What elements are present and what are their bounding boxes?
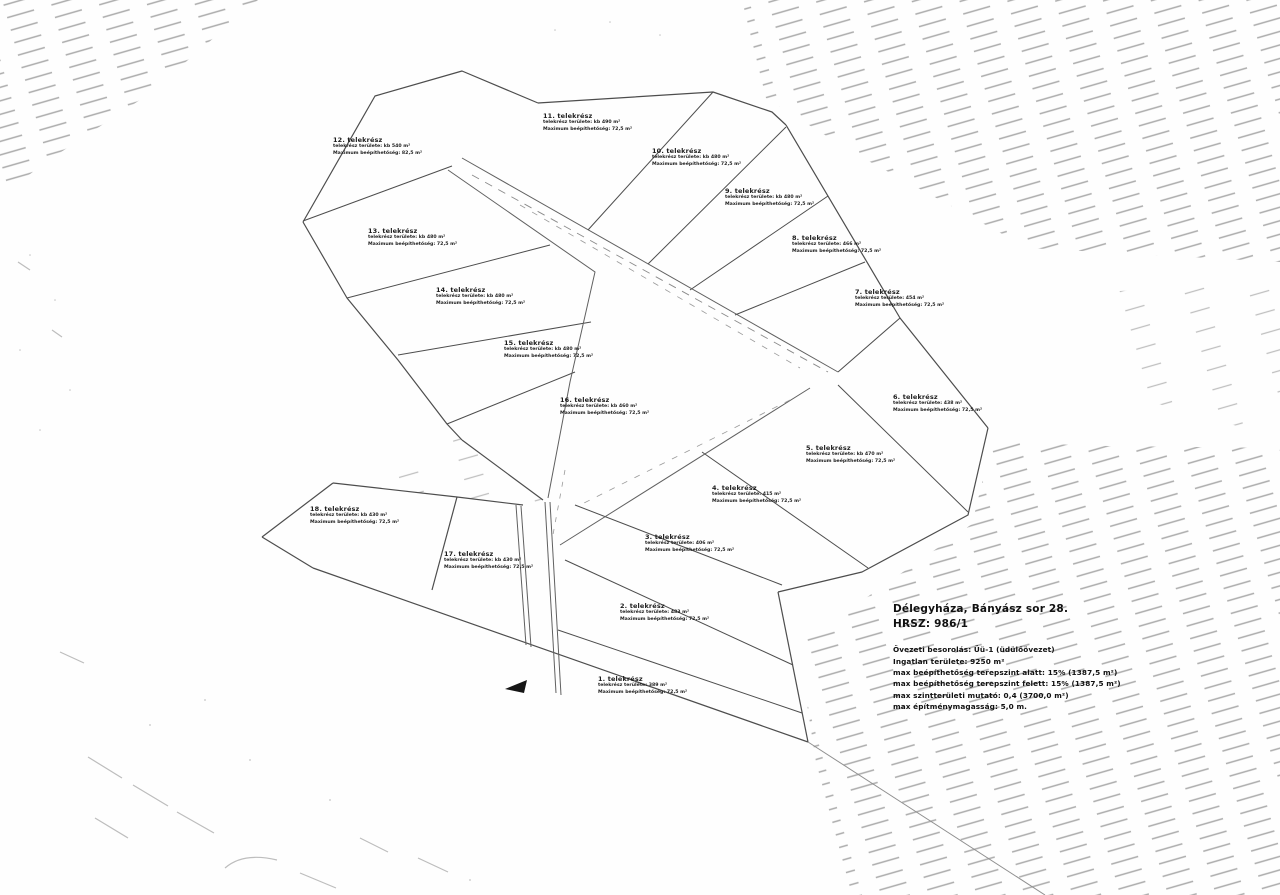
- plot-label-2: 2. telekrész telekrész területe: 483 m² …: [620, 602, 709, 623]
- plot-coverage: Maximum beépíthetőség: 72,5 m²: [652, 162, 741, 168]
- max-coverage-above-grade: max beépíthetőség terepszint felett: 15%…: [893, 678, 1121, 689]
- plot-label-18: 18. telekrész telekrész területe: kb 430…: [310, 505, 399, 526]
- plot-label-9: 9. telekrész telekrész területe: kb 480 …: [725, 187, 814, 208]
- plot-coverage: Maximum beépíthetőség: 72,5 m²: [712, 499, 801, 505]
- property-parcel-number: HRSZ: 986/1: [893, 617, 1121, 632]
- property-address: Délegyháza, Bányász sor 28.: [893, 602, 1121, 617]
- plot-label-14: 14. telekrész telekrész területe: kb 480…: [436, 286, 525, 307]
- plot-coverage: Maximum beépíthetőség: 72,5 m²: [598, 690, 687, 696]
- hatch-top-right: [742, 0, 1280, 262]
- neighbor-line-fragments: [18, 262, 448, 888]
- plot-area: telekrész területe: kb 490 m²: [543, 120, 632, 126]
- plot-area: telekrész területe: kb 480 m²: [725, 195, 814, 201]
- plot-coverage: Maximum beépíthetőség: 72,5 m²: [444, 565, 533, 571]
- plot-coverage: Maximum beépíthetőség: 72,5 m²: [543, 127, 632, 133]
- plot-coverage: Maximum beépíthetőség: 72,5 m²: [792, 249, 881, 255]
- plot-label-6: 6. telekrész telekrész területe: 438 m² …: [893, 393, 982, 414]
- plot-coverage: Maximum beépíthetőség: 72,5 m²: [620, 617, 709, 623]
- plot-area: telekrész területe: kb 460 m²: [560, 404, 649, 410]
- plot-label-15: 15. telekrész telekrész területe: kb 480…: [504, 339, 593, 360]
- plot-area: telekrész területe: kb 480 m²: [368, 235, 457, 241]
- entrance-arrow-icon: [505, 680, 527, 693]
- plot-coverage: Maximum beépíthetőség: 72,5 m²: [310, 520, 399, 526]
- plot-label-3: 3. telekrész telekrész területe: 406 m² …: [645, 533, 734, 554]
- plot-area: telekrész területe: kb 480 m²: [652, 155, 741, 161]
- plot-area: telekrész területe: kb 430 m²: [310, 513, 399, 519]
- property-info-block: Délegyháza, Bányász sor 28. HRSZ: 986/1 …: [893, 602, 1121, 712]
- plot-coverage: Maximum beépíthetőség: 72,5 m²: [645, 548, 734, 554]
- neighbor-hatch-areas: [0, 0, 1280, 895]
- plot-label-7: 7. telekrész telekrész területe: 454 m² …: [855, 288, 944, 309]
- max-floor-area-ratio: max szintterületi mutató: 0,4 (3700,0 m²…: [893, 690, 1121, 701]
- plot-label-13: 13. telekrész telekrész területe: kb 480…: [368, 227, 457, 248]
- plot-coverage: Maximum beépíthetőség: 72,5 m²: [725, 202, 814, 208]
- property-area: Ingatlan területe: 9250 m²: [893, 656, 1121, 667]
- plot-coverage: Maximum beépíthetőség: 72,5 m²: [893, 408, 982, 414]
- hatch-top-left: [0, 0, 258, 196]
- plot-coverage: Maximum beépíthetőség: 72,5 m²: [855, 303, 944, 309]
- zoning-classification: Övezeti besorolás: Üü-1 (üdülőövezet): [893, 644, 1121, 655]
- max-building-height: max építménymagasság: 5,0 m.: [893, 701, 1121, 712]
- plot-coverage: Maximum beépíthetőség: 72,5 m²: [806, 459, 895, 465]
- plot-coverage: Maximum beépíthetőség: 72,5 m²: [368, 242, 457, 248]
- plot-label-11: 11. telekrész telekrész területe: kb 490…: [543, 112, 632, 133]
- plot-label-8: 8. telekrész telekrész területe: 466 m² …: [792, 234, 881, 255]
- plot-area: telekrész területe: kb 480 m²: [436, 294, 525, 300]
- plot-label-10: 10. telekrész telekrész területe: kb 480…: [652, 147, 741, 168]
- plot-coverage: Maximum beépíthetőség: 72,5 m²: [504, 354, 593, 360]
- plot-label-1: 1. telekrész telekrész területe: 389 m² …: [598, 675, 687, 696]
- plot-label-5: 5. telekrész telekrész területe: kb 470 …: [806, 444, 895, 465]
- plot-area: telekrész területe: kb 540 m²: [333, 144, 422, 150]
- plot-label-16: 16. telekrész telekrész területe: kb 460…: [560, 396, 649, 417]
- plot-label-4: 4. telekrész telekrész területe: 415 m² …: [712, 484, 801, 505]
- plot-area: telekrész területe: kb 470 m²: [806, 452, 895, 458]
- hatch-right-middle: [1096, 284, 1280, 438]
- max-coverage-below-grade: max beépíthetőség terepszint alatt: 15% …: [893, 667, 1121, 678]
- plot-area: telekrész területe: kb 430 m²: [444, 558, 533, 564]
- site-plan-drawing: [0, 0, 1280, 895]
- plot-coverage: Maximum beépíthetőség: 72,5 m²: [436, 301, 525, 307]
- plot-coverage: Maximum beépíthetőség: 82,5 m²: [333, 151, 422, 157]
- plot-label-17: 17. telekrész telekrész területe: kb 430…: [444, 550, 533, 571]
- plot-area: telekrész területe: kb 480 m²: [504, 347, 593, 353]
- plot-coverage: Maximum beépíthetőség: 72,5 m²: [560, 411, 649, 417]
- plot-label-12: 12. telekrész telekrész területe: kb 540…: [333, 136, 422, 157]
- scanned-subdivision-plan-page: 1. telekrész telekrész területe: 389 m² …: [0, 0, 1280, 895]
